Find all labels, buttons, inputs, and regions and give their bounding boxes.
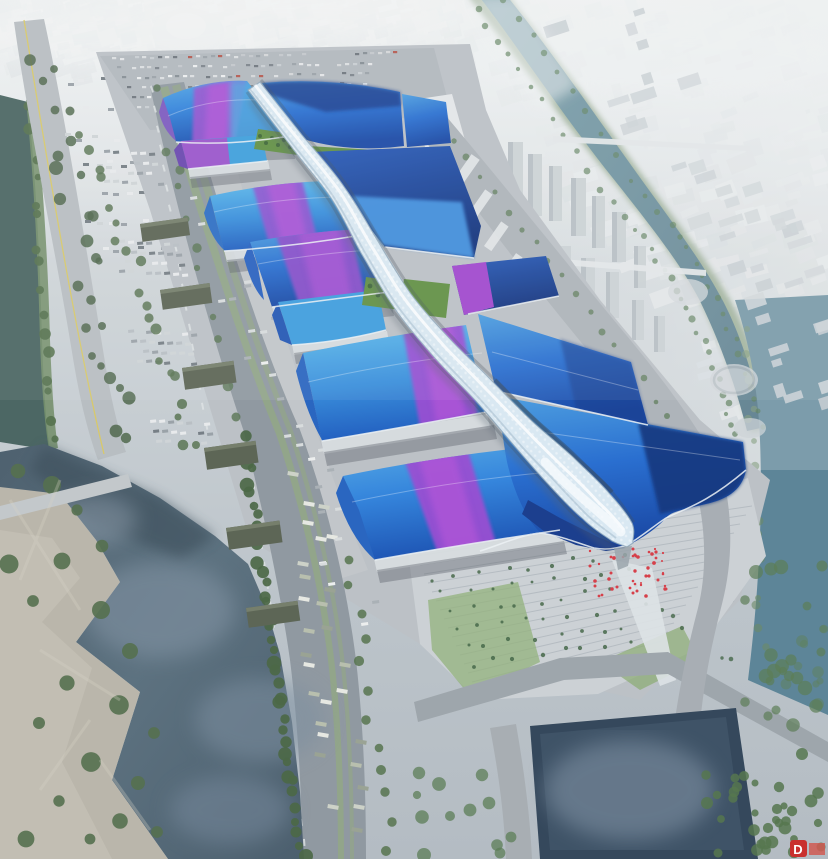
svg-text:D: D <box>793 842 802 857</box>
